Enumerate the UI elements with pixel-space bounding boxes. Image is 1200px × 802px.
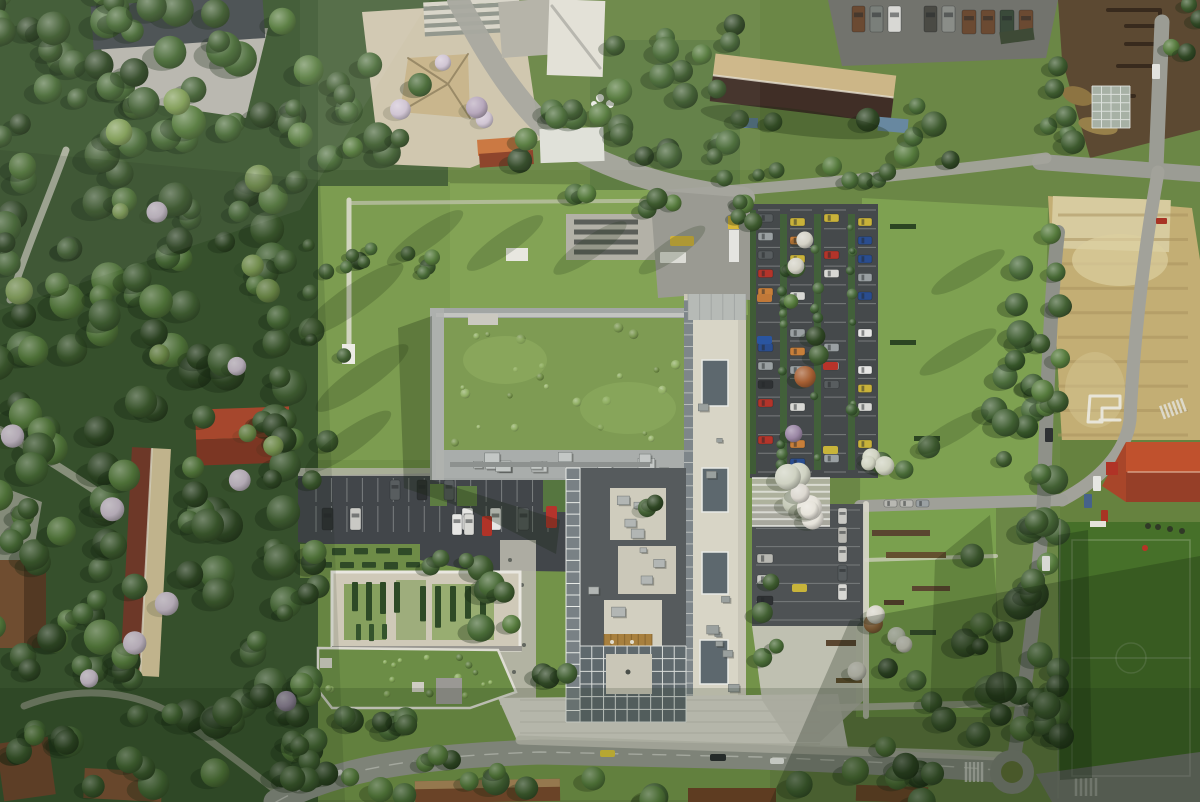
building-west-edge [430,308,444,480]
van-white [1093,476,1101,491]
meadow-light [463,336,547,384]
car-on-road [1152,64,1160,79]
red-car [823,362,838,370]
car-red [1101,510,1108,522]
court-grass [344,584,386,640]
garden-bed [884,600,904,605]
car-on-road [1045,428,1053,442]
garden-bed [872,530,930,536]
duct-pipe [450,462,650,467]
truck-trailer [729,230,739,262]
garden-bed [886,552,946,558]
red-building-roof-north [1126,442,1200,472]
cars-lower-east [838,508,847,600]
court-hedges [356,624,387,641]
lawn-hedge [890,224,916,229]
parking-hedge [750,210,756,474]
car-on-road [1156,218,1167,224]
taxi [823,446,838,454]
lawn-hedge [890,340,916,345]
road-ne-vertical [1156,22,1162,168]
bench-white [1090,521,1106,527]
car-blue [1084,494,1092,508]
dumpster-red [1106,462,1118,475]
haze-top-center [300,0,760,170]
red-building-roof-south [1126,472,1200,502]
skylight [702,552,728,594]
wing-north-block [688,294,746,320]
tan-light-patch [1072,234,1168,286]
pad-nw [468,314,498,325]
blue-car [757,336,772,344]
orange-car [757,294,772,302]
tan-light-patch [1065,352,1125,428]
meadow-light [580,382,676,434]
scene-svg [0,0,1200,802]
skylight [702,360,728,406]
statue [626,670,631,675]
car-on-road [1042,556,1050,571]
taxi [792,584,807,592]
aerial-site-render [0,0,1200,802]
person [1142,545,1148,551]
cars-on-road [884,500,929,507]
